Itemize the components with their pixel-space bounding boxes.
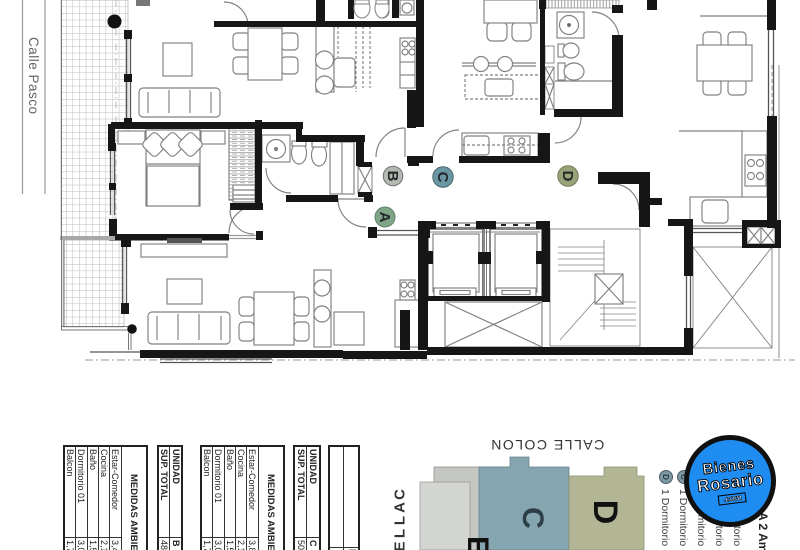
svg-text:D: D [559,171,576,182]
svg-text:E: E [461,536,494,550]
svg-text:C: C [434,172,451,183]
svg-text:C: C [516,507,549,529]
svg-text:B: B [384,171,401,182]
svg-text:A: A [376,212,393,223]
svg-text:D: D [661,474,670,480]
svg-text:D: D [586,500,624,525]
